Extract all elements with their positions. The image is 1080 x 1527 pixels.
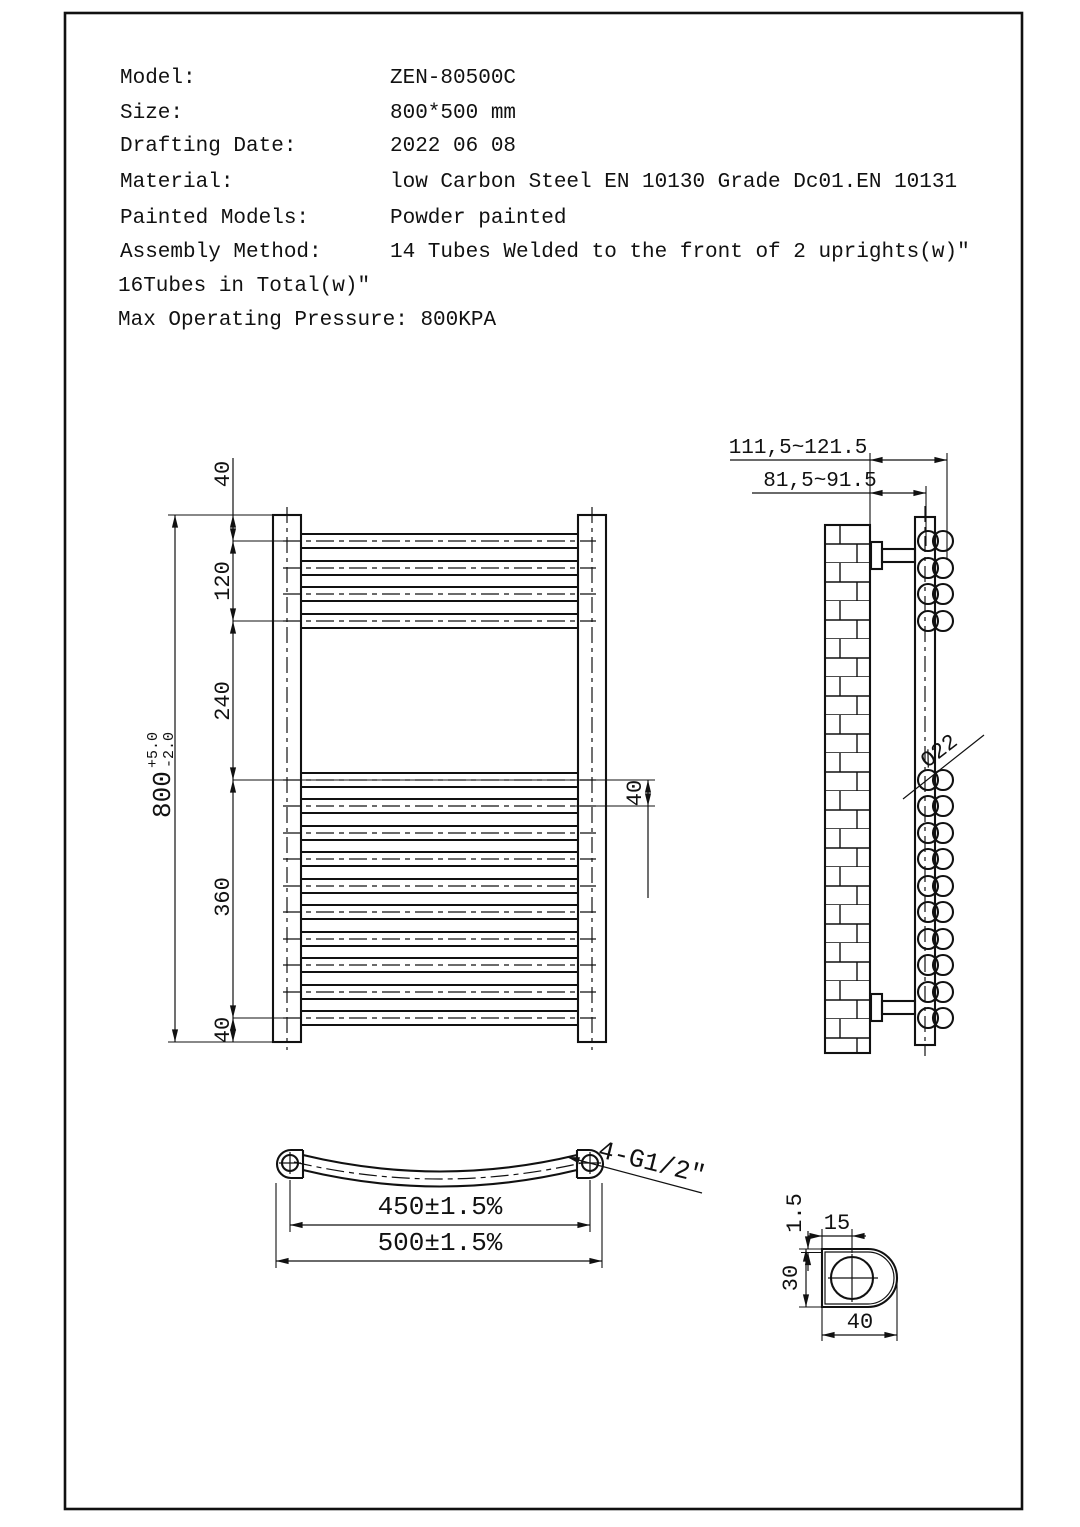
front-tubes-top-group bbox=[301, 534, 578, 628]
wall-hatch bbox=[825, 525, 870, 1053]
model-value: ZEN-80500C bbox=[390, 67, 516, 90]
plan-left-fitting bbox=[277, 1150, 303, 1178]
wall-to-front-dim-text: 111,5~121.5 bbox=[729, 437, 868, 460]
front-view: 800 +5.0 -2.0 40 120 240 360 40 40 bbox=[145, 458, 655, 1050]
assembly-method-value: 14 Tubes Welded to the front of 2 uprigh… bbox=[390, 241, 970, 264]
top-view: 450±1.5% 500±1.5% 4-G1/2" bbox=[276, 1135, 708, 1268]
bottom-wall-bracket bbox=[871, 994, 915, 1021]
tube-pitch-dim-text: 40 bbox=[623, 780, 648, 806]
top-wall-bracket bbox=[871, 542, 915, 569]
dim-120-text: 120 bbox=[211, 561, 236, 601]
sheet-border bbox=[65, 13, 1022, 1509]
depth-dim-text: 30 bbox=[779, 1265, 804, 1291]
material-value: low Carbon Steel EN 10130 Grade Dc01.EN … bbox=[390, 171, 957, 194]
material-label: Material: bbox=[120, 171, 233, 194]
painted-models-value: Powder painted bbox=[390, 207, 566, 230]
assembly-method-continuation: 16Tubes in Total(w)" bbox=[118, 275, 370, 298]
thread-label-text: 4-G1/2" bbox=[595, 1135, 708, 1191]
side-view: 111,5~121.5 81,5~91.5 Ø22 bbox=[729, 437, 984, 1056]
assembly-method-label: Assembly Method: bbox=[120, 241, 322, 264]
title-block: Model: ZEN-80500C Size: 800*500 mm Draft… bbox=[118, 67, 970, 332]
svg-text:-2.0: -2.0 bbox=[161, 732, 178, 768]
technical-drawing: Model: ZEN-80500C Size: 800*500 mm Draft… bbox=[0, 0, 1080, 1527]
drawing-sheet: Model: ZEN-80500C Size: 800*500 mm Draft… bbox=[0, 0, 1080, 1527]
front-tubes-bottom-centerlines bbox=[283, 780, 596, 1018]
hole-offset-dim-text: 15 bbox=[824, 1211, 850, 1236]
size-value: 800*500 mm bbox=[390, 102, 516, 125]
svg-text:+5.0: +5.0 bbox=[145, 732, 162, 768]
dim-240-text: 240 bbox=[211, 681, 236, 721]
dim-360-text: 360 bbox=[211, 877, 236, 917]
thickness-dim-text: 1.5 bbox=[783, 1193, 808, 1233]
size-label: Size: bbox=[120, 102, 183, 125]
drafting-date-value: 2022 06 08 bbox=[390, 135, 516, 158]
svg-text:800: 800 bbox=[148, 771, 178, 818]
plan-tube-front-edge bbox=[303, 1155, 577, 1172]
drafting-date-label: Drafting Date: bbox=[120, 135, 296, 158]
painted-models-label: Painted Models: bbox=[120, 207, 309, 230]
detail-view: 1.5 15 30 40 bbox=[779, 1193, 897, 1341]
dim-bottom-40-text: 40 bbox=[211, 1017, 236, 1043]
wall-to-center-dim-text: 81,5~91.5 bbox=[763, 470, 876, 493]
overall-height-dim-text: 800 +5.0 -2.0 bbox=[145, 732, 178, 818]
dim-top-40-text: 40 bbox=[211, 461, 236, 487]
width-dim-text: 40 bbox=[847, 1310, 873, 1335]
overall-width-dim-text: 500±1.5% bbox=[378, 1228, 503, 1258]
front-tubes-top-centerlines bbox=[283, 541, 596, 621]
hole-crosshair bbox=[828, 1254, 878, 1302]
model-label: Model: bbox=[120, 67, 196, 90]
max-pressure-line: Max Operating Pressure: 800KPA bbox=[118, 309, 496, 332]
tube-diameter-text: Ø22 bbox=[916, 730, 963, 774]
front-tubes-bottom-group bbox=[301, 773, 578, 1025]
bracket-centers-dim-text: 450±1.5% bbox=[378, 1192, 503, 1222]
